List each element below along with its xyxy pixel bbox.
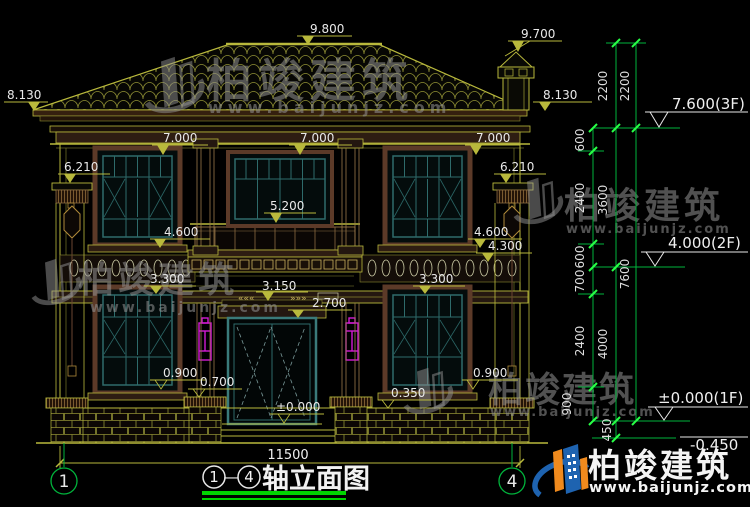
chain-inner-2400a: 2400: [573, 183, 587, 214]
elev-porch-value: 0.700: [200, 375, 234, 389]
elev-balcony-slab-value: 3.150: [262, 279, 296, 293]
elev-sill1f-right-value: 0.900: [473, 366, 507, 380]
chimney: [498, 52, 534, 110]
chain-inner-900: 900: [560, 393, 574, 416]
watermark-url: www.baijunjz.com: [208, 98, 451, 117]
elev-cornice-mid-value: 7.000: [300, 131, 334, 145]
elev-cornice-left-value: 7.000: [163, 131, 197, 145]
elev-sill2f-left-value: 4.600: [164, 225, 198, 239]
level-2f: 4.000(2F): [668, 234, 741, 252]
elev-post-left-value: 6.210: [64, 160, 98, 174]
elev-console-right-value: 4.300: [488, 239, 522, 253]
title-axis-to: 4: [244, 468, 254, 486]
title-text: 轴立面图: [262, 463, 370, 495]
elev-band-left-value: 3.300: [150, 272, 184, 286]
elev-band-right-value: 3.300: [419, 272, 453, 286]
elev-eave-left-value: 8.130: [7, 88, 41, 102]
axis-1-label: 1: [59, 472, 70, 492]
logo-url-text: www.baijunjz.com: [589, 480, 750, 496]
chain-middle-2200: 2200: [596, 71, 610, 102]
window-2f-right: [378, 148, 477, 252]
elev-chimney: 9.700: [505, 27, 562, 56]
logo-tower-blue: [563, 444, 581, 494]
drawing-canvas: ««« »»»: [0, 0, 750, 507]
elev-threshold-value: ±0.000: [276, 400, 320, 414]
wall-lamp-right: [346, 318, 358, 360]
elev-sill1f-left-value: 0.900: [163, 366, 197, 380]
elev-eave-right: 8.130: [533, 88, 592, 111]
level-3f: 7.600(3F): [672, 95, 745, 113]
elev-ridge-value: 9.800: [310, 22, 344, 36]
elev-cornice-right-value: 7.000: [476, 131, 510, 145]
elev-sill2f-right-value: 4.600: [474, 225, 508, 239]
chain-outer-7600: 7600: [618, 259, 632, 290]
chain-middle-450: 450: [600, 419, 614, 442]
title-axis-from: 1: [209, 468, 219, 486]
elev-door-head-value: 2.700: [312, 296, 346, 310]
watermark-brand: 柏竣建筑: [564, 186, 724, 227]
chain-inner-600b: 600: [573, 246, 587, 269]
axis-4-label: 4: [507, 472, 518, 492]
elev-chimney-value: 9.700: [521, 27, 555, 41]
title-underline-thin: [202, 498, 346, 500]
level-1f: ±0.000(1F): [658, 389, 743, 407]
chain-middle-3600: 3600: [596, 185, 610, 216]
chain-inner-2400b: 2400: [573, 326, 587, 357]
elev-eave-right-value: 8.130: [543, 88, 577, 102]
drawing-title: 1 — 4 轴立面图: [202, 463, 370, 500]
elev-post-right-value: 6.210: [500, 160, 534, 174]
overall-width-value: 11500: [267, 448, 308, 463]
gate-post-left: [46, 183, 92, 443]
chain-middle-4000: 4000: [596, 329, 610, 360]
elev-plinth-value: 0.350: [391, 386, 425, 400]
logo-tower-orange: [553, 449, 564, 492]
chain-inner-600a: 600: [573, 129, 587, 152]
chain-outer-2200: 2200: [618, 71, 632, 102]
cad-elevation-drawing: ««« »»»: [0, 0, 750, 507]
title-underline-thick: [202, 491, 346, 495]
title-dash: —: [224, 468, 239, 486]
brand-logo: 柏竣建筑 www.baijunjz.com: [535, 444, 750, 496]
elev-ridge: 9.800: [297, 22, 352, 45]
watermark-url: www.baijunjz.com: [90, 300, 281, 316]
chain-inner-700: 700: [573, 270, 587, 293]
elev-balcony-rail-value: 5.200: [270, 199, 304, 213]
